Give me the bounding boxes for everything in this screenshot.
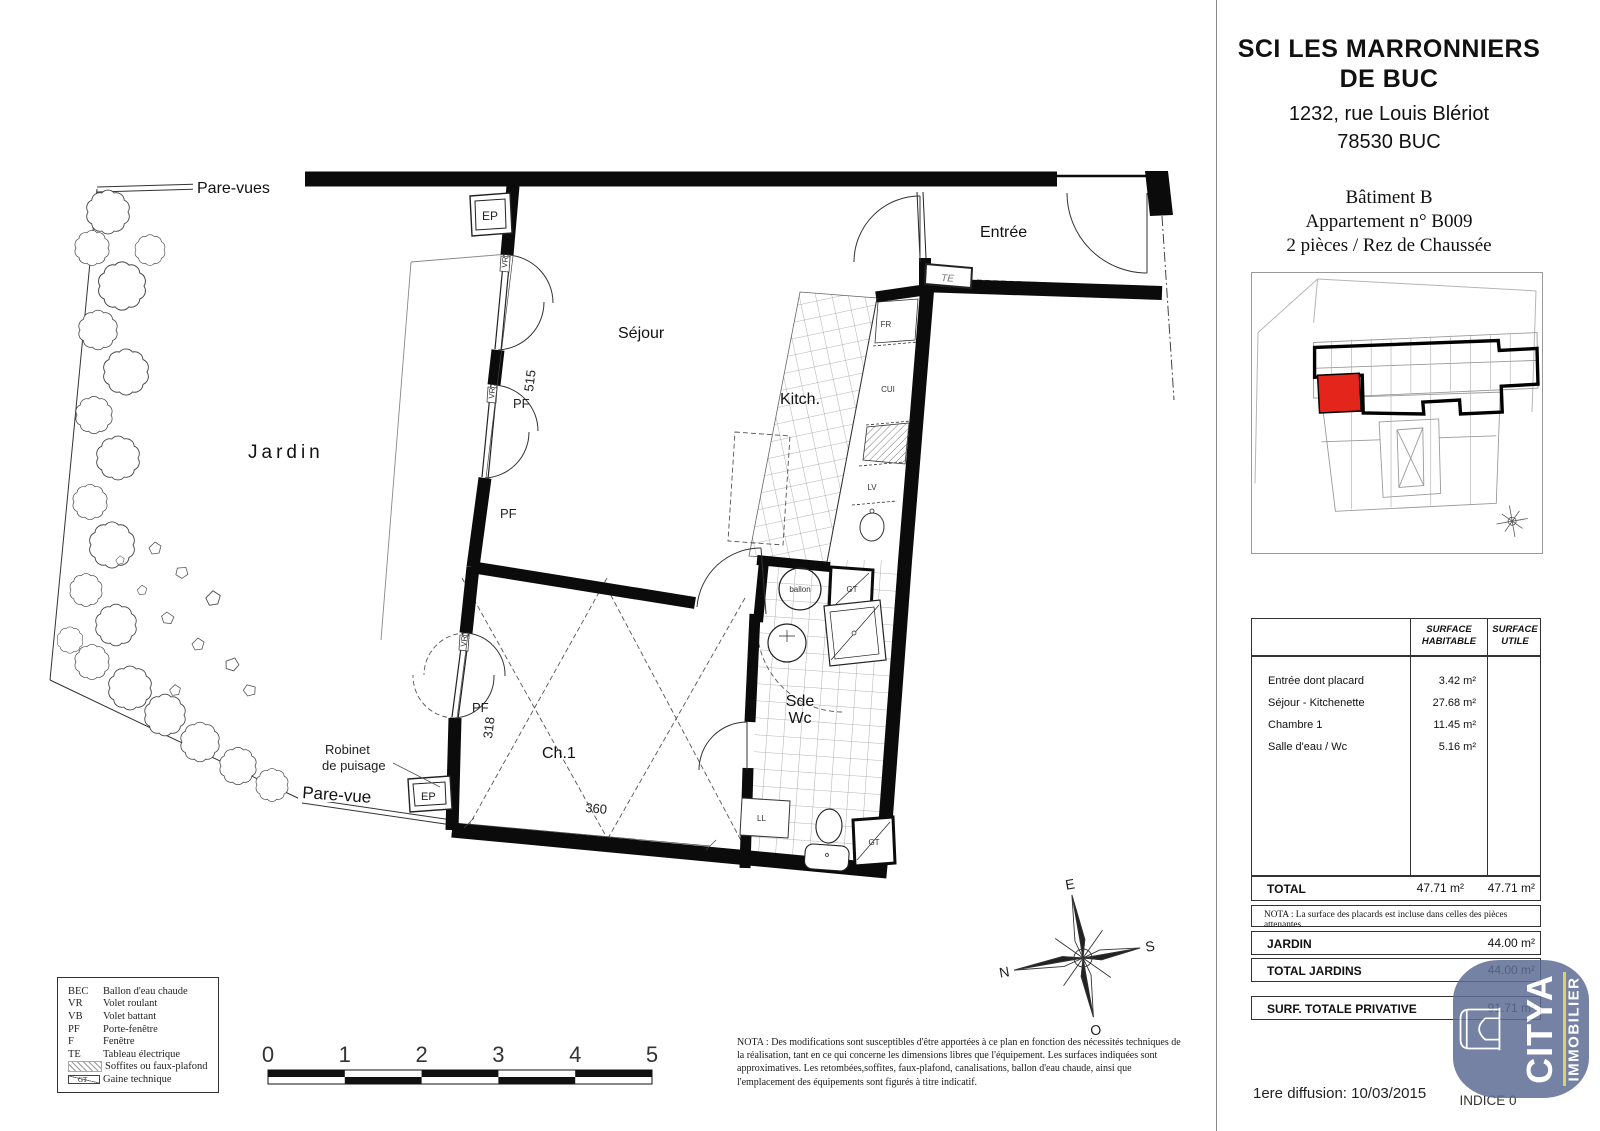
unit-type: 2 pièces / Rez de Chaussée <box>1217 234 1561 258</box>
total-jardins-label: TOTAL JARDINS <box>1267 964 1362 978</box>
nota-row: NOTA : La surface des placards est inclu… <box>1251 905 1541 927</box>
label-ballon: ballon <box>789 585 810 594</box>
row-label: Entrée dont placard <box>1268 675 1364 687</box>
label-vr-2: VR <box>487 387 497 399</box>
highlighted-unit <box>1318 373 1362 413</box>
shower <box>824 600 886 666</box>
room-label-sejour: Séjour <box>618 325 665 342</box>
logo-name: CITYA <box>1519 974 1561 1084</box>
surface-table: SURFACE HABITABLE SURFACE UTILE Entrée d… <box>1251 618 1541 876</box>
jardin-row: JARDIN 44.00 m² <box>1251 931 1541 955</box>
compass-s: S <box>1144 938 1156 955</box>
label-gt-top: GT <box>846 585 857 594</box>
building-label: Bâtiment B <box>1217 186 1561 210</box>
legend-label: Porte-fenêtre <box>103 1024 158 1035</box>
label-ll: LL <box>757 814 766 823</box>
legend-item: BECBallon d'eau chaude <box>68 985 218 998</box>
row-label: Salle d'eau / Wc <box>1268 741 1347 753</box>
label-robinet-1: Robinet <box>325 742 370 757</box>
legend-box: BECBallon d'eau chaude VRVolet roulant V… <box>57 977 219 1093</box>
address-line1: 1232, rue Louis Blériot <box>1217 100 1561 128</box>
section-limit-line <box>1162 216 1174 400</box>
floor-plan: E S O N 0 1 2 3 4 5 Pare-vues Jardin Séj… <box>0 0 1216 1131</box>
washbasin <box>768 624 806 662</box>
info-panel: SCI LES MARRONNIERS DE BUC 1232, rue Lou… <box>1216 0 1600 1131</box>
legend-item: Soffites ou faux-plafond <box>68 1061 218 1074</box>
legend-item: VBVolet battant <box>68 1010 218 1023</box>
col-surface-habitable: SURFACE HABITABLE <box>1410 619 1487 655</box>
row-value: 27.68 m² <box>1410 697 1476 709</box>
compass-n: N <box>998 963 1011 981</box>
gt-swatch-icon: GT <box>68 1075 100 1084</box>
legend-abbr: TE <box>68 1049 103 1060</box>
label-pare-vue: Pare-vue <box>302 783 372 807</box>
legend-abbr: VB <box>68 1011 103 1022</box>
scale-tick-3: 3 <box>492 1042 504 1067</box>
label-fr: FR <box>881 320 892 329</box>
legend-item: GTGaine technique <box>68 1073 218 1086</box>
building-outline <box>1314 333 1538 512</box>
legend-label: Ballon d'eau chaude <box>103 986 188 997</box>
jardin-label: JARDIN <box>1267 937 1312 951</box>
col-surface-utile: SURFACE UTILE <box>1487 619 1542 655</box>
dim-pf-3: PF <box>472 700 489 715</box>
table-row: Chambre 1 11.45 m² <box>1252 719 1540 741</box>
dim-pf-2: PF <box>500 506 517 521</box>
legend-abbr: PF <box>68 1024 103 1035</box>
scale-tick-5: 5 <box>646 1042 658 1067</box>
label-te: TE <box>941 273 955 285</box>
surface-table-header: SURFACE HABITABLE SURFACE UTILE <box>1252 619 1540 657</box>
label-pare-vues: Pare-vues <box>197 180 270 197</box>
panel-header: SCI LES MARRONNIERS DE BUC 1232, rue Lou… <box>1217 34 1561 156</box>
company-name-line2: DE BUC <box>1217 64 1561 94</box>
nota-paragraph: NOTA : Des modifications sont susceptibl… <box>737 1036 1189 1089</box>
table-row: Entrée dont placard 3.42 m² <box>1252 675 1540 697</box>
legend-item: VRVolet roulant <box>68 998 218 1011</box>
label-gt-bottom: GT <box>868 838 879 847</box>
row-value: 5.16 m² <box>1410 741 1476 753</box>
dim-pf-1: PF <box>513 396 530 411</box>
site-plan <box>1251 272 1543 554</box>
room-label-entree: Entrée <box>980 224 1027 241</box>
scale-tick-0: 0 <box>262 1042 274 1067</box>
label-robinet-2: de puisage <box>322 758 386 773</box>
label-vr-3: VR <box>459 635 469 647</box>
room-label-sde: Sde <box>786 693 815 710</box>
room-label-kitchen: Kitch. <box>780 391 820 408</box>
label-vr-1: VR <box>500 256 510 268</box>
citya-logo: CITYA IMMOBILIER <box>1453 960 1589 1098</box>
soffit-swatch-icon <box>68 1061 102 1072</box>
apartment-number: Appartement n° B009 <box>1217 210 1561 234</box>
total-habitable: 47.71 m² <box>1417 881 1464 895</box>
privative-label: SURF. TOTALE PRIVATIVE <box>1267 1002 1417 1016</box>
legend-abbr: F <box>68 1036 103 1047</box>
monument-icon <box>1457 1006 1503 1052</box>
apartment-info: Bâtiment B Appartement n° B009 2 pièces … <box>1217 186 1561 258</box>
room-label-jardin: Jardin <box>248 442 324 463</box>
legend-abbr: VR <box>68 998 103 1009</box>
compass-rose: E S O N <box>985 864 1169 1053</box>
table-row: Séjour - Kitchenette 27.68 m² <box>1252 697 1540 719</box>
company-name-line1: SCI LES MARRONNIERS <box>1217 34 1561 64</box>
compass-e: E <box>1064 875 1076 892</box>
scale-tick-1: 1 <box>339 1042 351 1067</box>
site-compass-icon <box>1494 503 1531 540</box>
row-label: Séjour - Kitchenette <box>1268 697 1365 709</box>
legend-label: Soffites ou faux-plafond <box>105 1061 207 1072</box>
scale-tick-4: 4 <box>569 1042 581 1067</box>
jardin-value: 44.00 m² <box>1488 936 1535 950</box>
total-label: TOTAL <box>1267 882 1306 896</box>
scale-bar: 0 1 2 3 4 5 <box>262 1042 658 1084</box>
legend-label: Volet battant <box>103 1011 156 1022</box>
total-row: TOTAL 47.71 m² 47.71 m² <box>1251 876 1541 901</box>
legend-label: Gaine technique <box>103 1074 172 1085</box>
label-ep-garden: EP <box>421 791 436 803</box>
legend-item: PFPorte-fenêtre <box>68 1023 218 1036</box>
address-line2: 78530 BUC <box>1217 128 1561 156</box>
garden-trees <box>57 190 288 801</box>
surface-table-body: Entrée dont placard 3.42 m² Séjour - Kit… <box>1252 657 1540 875</box>
legend-item: FFenêtre <box>68 1035 218 1048</box>
label-lv: LV <box>867 483 877 492</box>
legend-label: Volet roulant <box>103 998 157 1009</box>
legend-label: Tableau électrique <box>103 1049 180 1060</box>
row-value: 3.42 m² <box>1410 675 1476 687</box>
label-ep-top: EP <box>482 209 498 223</box>
scale-tick-2: 2 <box>415 1042 427 1067</box>
legend-label: Fenêtre <box>103 1036 135 1047</box>
diffusion-date: 1ere diffusion: 10/03/2015 <box>1253 1085 1426 1102</box>
legend-item: TETableau électrique <box>68 1048 218 1061</box>
logo-tagline: IMMOBILIER <box>1566 977 1583 1082</box>
total-utile: 47.71 m² <box>1488 881 1535 895</box>
room-label-chambre: Ch.1 <box>542 745 576 762</box>
legend-abbr: BEC <box>68 986 103 997</box>
dim-515: 515 <box>521 369 539 392</box>
dim-318: 318 <box>480 716 498 739</box>
label-cui: CUI <box>881 385 895 394</box>
room-label-wc: Wc <box>788 710 811 727</box>
row-label: Chambre 1 <box>1268 719 1322 731</box>
row-value: 11.45 m² <box>1410 719 1476 731</box>
dim-360: 360 <box>585 800 608 817</box>
table-row: Salle d'eau / Wc 5.16 m² <box>1252 741 1540 763</box>
